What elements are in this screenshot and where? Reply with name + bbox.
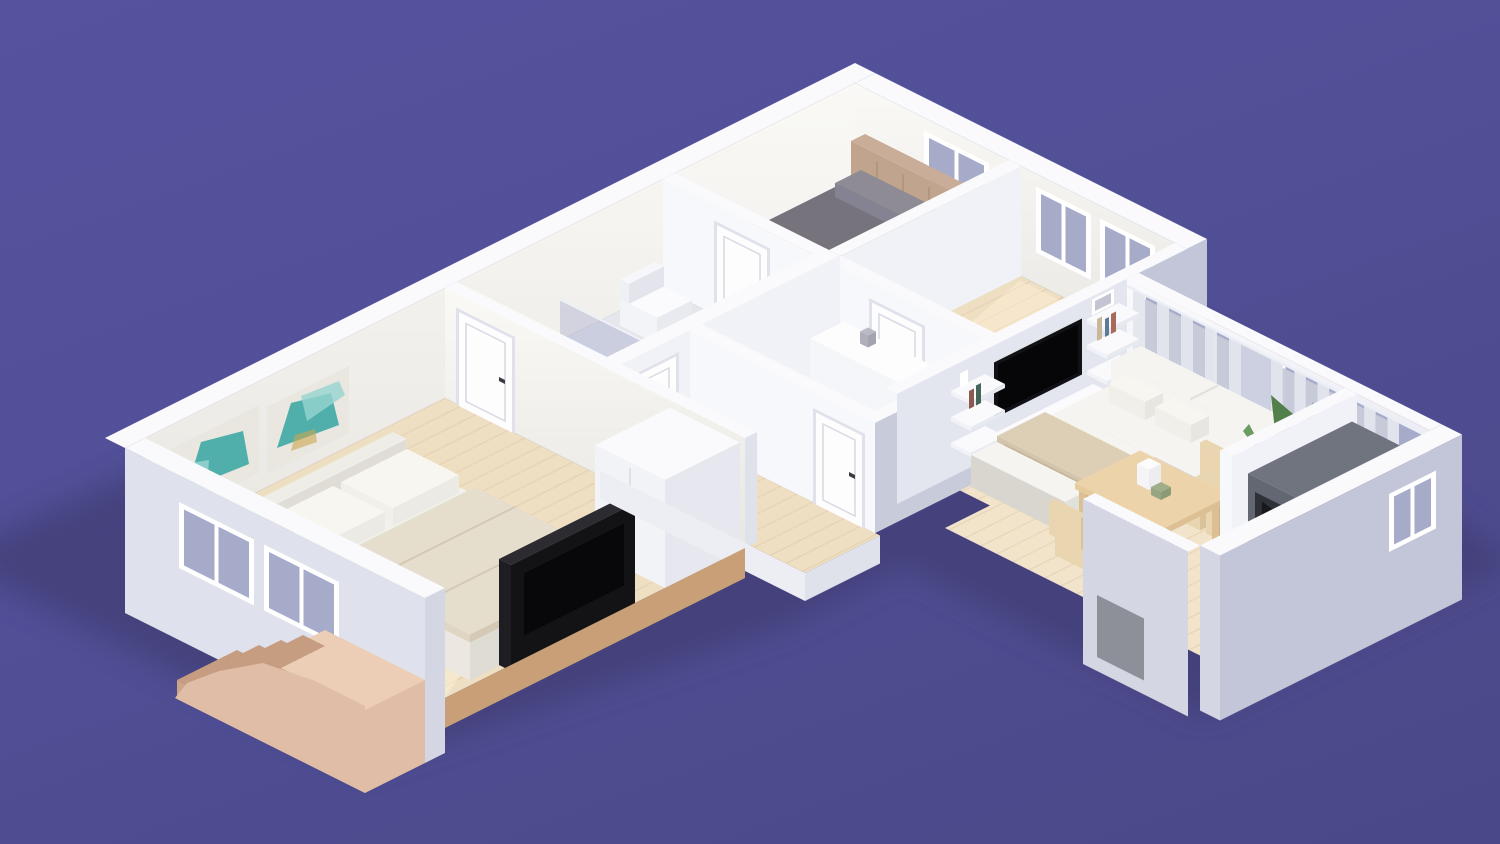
book-spine-2	[1105, 317, 1109, 337]
end-wall-east-cap	[1200, 546, 1220, 721]
book-spine-4	[976, 383, 981, 406]
book-spine-5	[969, 389, 974, 410]
purple-backdrop	[0, 0, 1500, 844]
end-wall-south-cap	[425, 588, 445, 763]
book-spine-3	[1097, 317, 1102, 342]
isometric-floorplan-render	[0, 0, 1500, 844]
wall-master-bedroom-cap	[745, 432, 757, 548]
book-spine-1	[1111, 312, 1116, 335]
bathroom-faucet-left	[860, 328, 876, 348]
apartment-model	[0, 63, 1500, 793]
